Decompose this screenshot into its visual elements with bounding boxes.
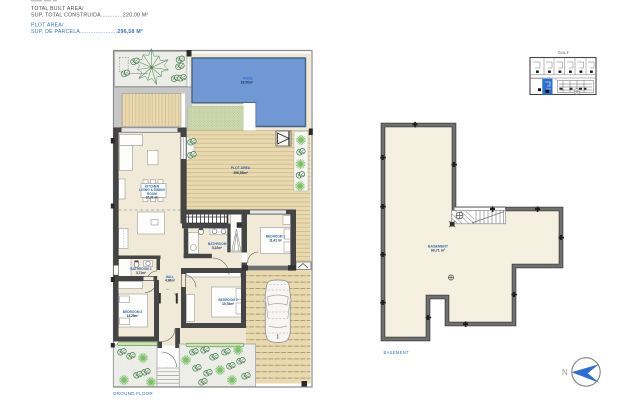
svg-text:PLOT AREA: PLOT AREA (231, 166, 251, 170)
svg-text:N: N (562, 368, 568, 377)
svg-text:5,22m²: 5,22m² (212, 246, 222, 250)
svg-text:PLOT AREA/: PLOT AREA/ (31, 23, 64, 29)
svg-text:3,71m²: 3,71m² (136, 271, 146, 275)
svg-text:13,25m²: 13,25m² (127, 314, 139, 318)
svg-text:TOTAL BUILT AREA/: TOTAL BUILT AREA/ (31, 6, 84, 12)
svg-text:10,78m²: 10,78m² (222, 302, 234, 306)
svg-text:GROUND FLOOR: GROUND FLOOR (113, 391, 153, 396)
svg-text:296,58m²: 296,58m² (233, 171, 248, 175)
svg-text:93,71 m²: 93,71 m² (431, 249, 446, 253)
svg-text:4,96m²: 4,96m² (165, 279, 175, 283)
svg-text:BASEMENT: BASEMENT (384, 350, 410, 355)
svg-text:SUP. TOTAL CONSTRUIDA.........: SUP. TOTAL CONSTRUIDA.............220,00… (31, 13, 148, 19)
svg-text:37,31 m²: 37,31 m² (146, 196, 159, 200)
svg-text:39.50m²: 39.50m² (241, 81, 254, 85)
svg-text:SUP. DE PARCELA...............: SUP. DE PARCELA......................296… (31, 29, 143, 35)
svg-text:11,41 m²: 11,41 m² (269, 239, 282, 243)
svg-text:GOLF: GOLF (558, 51, 570, 55)
